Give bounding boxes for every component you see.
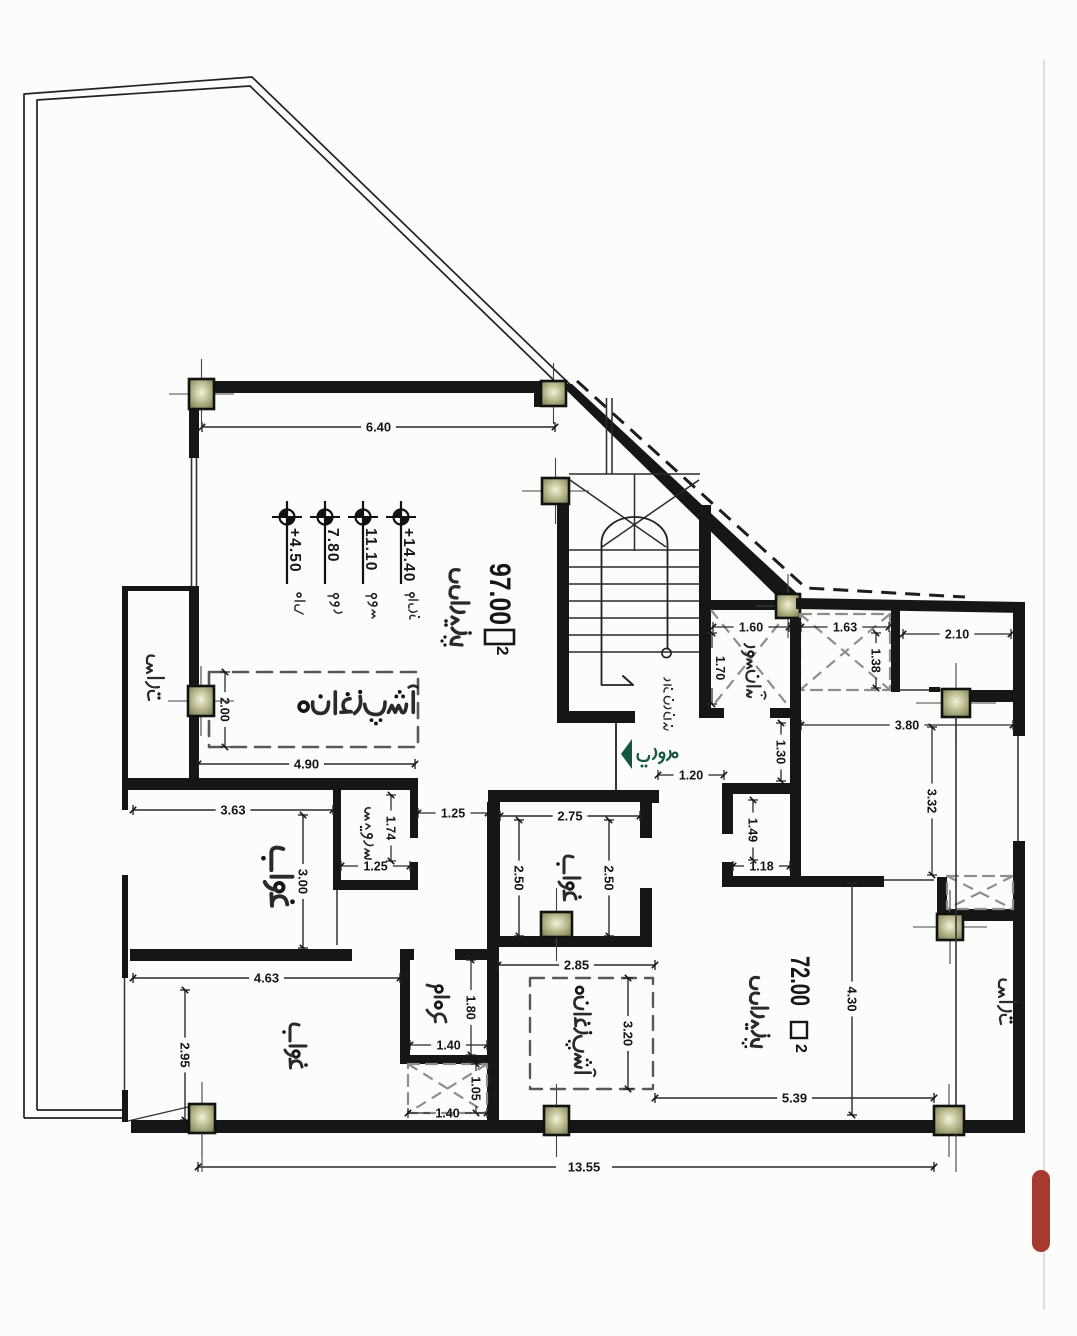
- svg-text:2.10: 2.10: [945, 628, 969, 642]
- svg-text:1.05: 1.05: [469, 1076, 483, 1100]
- svg-text:2.50: 2.50: [602, 865, 617, 890]
- svg-text:2: 2: [792, 1044, 809, 1053]
- svg-text:1.20: 1.20: [679, 769, 703, 783]
- svg-text:7.80: 7.80: [324, 528, 341, 563]
- svg-text:+4.50: +4.50: [286, 528, 303, 573]
- svg-text:4.63: 4.63: [254, 971, 279, 986]
- svg-text:13.55: 13.55: [568, 1160, 601, 1175]
- svg-text:1.70: 1.70: [713, 656, 727, 680]
- svg-text:72.00: 72.00: [785, 956, 815, 1006]
- svg-text:3.63: 3.63: [220, 803, 245, 818]
- svg-text:2.95: 2.95: [178, 1042, 193, 1067]
- svg-text:97.00: 97.00: [483, 563, 516, 625]
- svg-text:1.30: 1.30: [774, 740, 788, 764]
- svg-text:2.75: 2.75: [557, 809, 582, 824]
- svg-text:1.18: 1.18: [749, 860, 773, 874]
- svg-text:3.80: 3.80: [895, 719, 919, 733]
- svg-text:1.49: 1.49: [746, 818, 760, 842]
- svg-text:3.20: 3.20: [621, 1021, 636, 1046]
- svg-text:3.32: 3.32: [925, 789, 939, 813]
- svg-text:4.90: 4.90: [294, 757, 319, 772]
- svg-text:4.30: 4.30: [845, 986, 860, 1011]
- svg-text:+14.40: +14.40: [400, 528, 417, 582]
- svg-text:1.25: 1.25: [363, 860, 387, 874]
- svg-text:6.40: 6.40: [366, 420, 391, 435]
- svg-text:1.80: 1.80: [464, 995, 478, 1019]
- svg-text:1.74: 1.74: [384, 816, 398, 840]
- svg-text:3.00: 3.00: [296, 869, 311, 894]
- svg-text:5.39: 5.39: [782, 1091, 807, 1106]
- svg-text:1.60: 1.60: [739, 621, 763, 635]
- svg-text:1.38: 1.38: [869, 648, 883, 672]
- svg-text:1.40: 1.40: [436, 1039, 460, 1053]
- svg-text:1.40: 1.40: [435, 1107, 459, 1121]
- svg-text:2.85: 2.85: [564, 958, 589, 973]
- svg-text:2.50: 2.50: [512, 865, 527, 890]
- svg-text:1.25: 1.25: [441, 807, 465, 821]
- svg-text:2: 2: [493, 646, 512, 655]
- svg-text:11.10: 11.10: [362, 528, 379, 571]
- svg-text:1.63: 1.63: [833, 621, 857, 635]
